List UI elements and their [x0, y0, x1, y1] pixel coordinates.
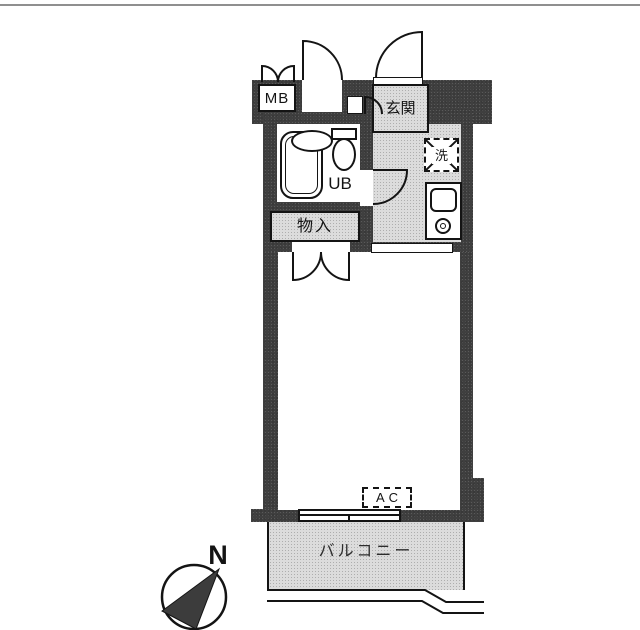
wall-right-column [460, 252, 473, 482]
entrance-label: 玄関 [385, 101, 415, 116]
kitchen-sink [430, 188, 457, 212]
ac-label: AC [376, 491, 402, 504]
floor-plan-canvas: MB 玄関 UB 洗 物入 AC バルコニー [0, 0, 640, 630]
unit-bath-label: UB [328, 175, 352, 192]
corridor-door-opening [302, 80, 342, 112]
shoe-cabinet [347, 96, 363, 114]
entrance-door-swing-icon [376, 32, 422, 78]
compass-needle [162, 569, 219, 629]
top-rule [0, 4, 640, 6]
balcony-label: バルコニー [319, 544, 414, 560]
closet-door-opening [292, 242, 350, 252]
storage-closet: 物入 [270, 211, 360, 242]
ac-space: AC [362, 487, 412, 508]
compass-north-label: N [203, 541, 233, 569]
toilet-bowl [332, 138, 356, 171]
unit-bath-label-box: UB [320, 171, 360, 195]
compass-icon [162, 565, 226, 629]
balcony-label-box: バルコニー [269, 542, 463, 562]
main-room-floor [278, 252, 460, 510]
wall-bottom-left-stub [251, 509, 299, 522]
compass-circle [162, 565, 226, 629]
burner-inner-dot [440, 223, 446, 229]
washer-label-box: 洗 [432, 147, 451, 164]
washer-label: 洗 [435, 149, 448, 162]
room-threshold-strip [371, 243, 453, 253]
compass-north-letter: N [208, 542, 228, 569]
corridor-door-swing-icon [303, 41, 342, 80]
meter-box: MB [258, 84, 296, 112]
bath-door-opening [360, 170, 373, 206]
balcony-railing-line-lower [267, 601, 484, 613]
balcony-area: バルコニー [267, 522, 465, 590]
balcony-railing-line-upper [267, 590, 484, 602]
storage-label: 物入 [297, 219, 333, 235]
washer-space: 洗 [424, 138, 459, 172]
wall-bottom-right-segment [400, 510, 484, 522]
meter-box-label: MB [265, 91, 290, 106]
wall-left [263, 252, 278, 522]
entrance-area: 玄関 [372, 84, 429, 133]
wash-basin [291, 130, 333, 152]
window-center-tick [348, 514, 350, 521]
